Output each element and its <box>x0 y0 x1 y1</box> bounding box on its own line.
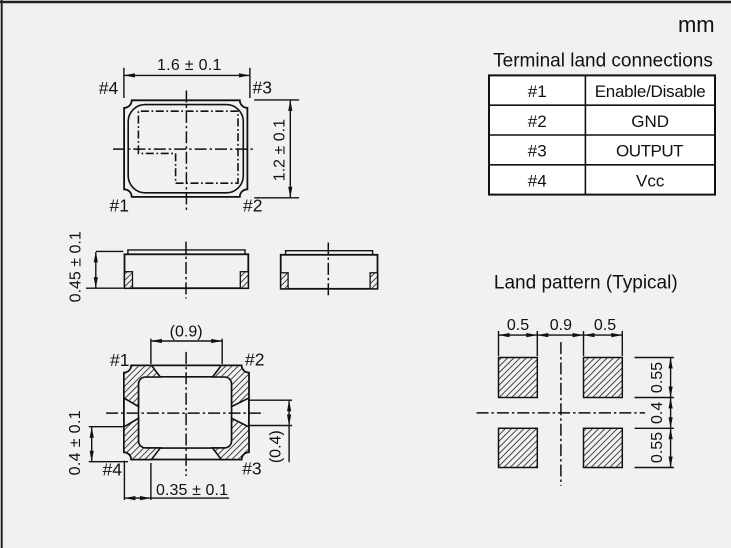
svg-text:#3: #3 <box>528 142 547 161</box>
svg-text:OUTPUT: OUTPUT <box>616 142 684 161</box>
svg-text:0.55: 0.55 <box>649 362 666 393</box>
svg-text:0.45 ± 0.1: 0.45 ± 0.1 <box>68 231 85 302</box>
svg-text:0.4 ± 0.1: 0.4 ± 0.1 <box>67 410 84 475</box>
svg-text:#1: #1 <box>110 350 129 370</box>
svg-text:0.9: 0.9 <box>550 317 572 334</box>
svg-text:#4: #4 <box>103 460 123 480</box>
svg-text:1.6 ± 0.1: 1.6 ± 0.1 <box>157 57 222 74</box>
svg-text:0.55: 0.55 <box>649 432 666 463</box>
svg-text:0.5: 0.5 <box>594 317 616 334</box>
svg-text:Vcc: Vcc <box>636 171 665 190</box>
svg-text:(0.4): (0.4) <box>267 430 284 463</box>
svg-text:#3: #3 <box>253 78 272 98</box>
svg-text:(0.9): (0.9) <box>170 324 203 341</box>
svg-text:#1: #1 <box>528 82 547 101</box>
svg-text:Land pattern (Typical): Land pattern (Typical) <box>494 273 678 294</box>
svg-text:0.5: 0.5 <box>507 317 529 334</box>
svg-text:#2: #2 <box>245 350 264 370</box>
svg-text:Terminal land connections: Terminal land connections <box>493 51 713 72</box>
svg-text:Enable/Disable: Enable/Disable <box>595 82 706 101</box>
svg-text:0.4: 0.4 <box>649 402 666 424</box>
svg-text:#1: #1 <box>110 195 129 215</box>
svg-text:GND: GND <box>631 112 669 131</box>
svg-text:mm: mm <box>678 12 715 37</box>
svg-text:#4: #4 <box>99 78 119 98</box>
svg-text:1.2 ± 0.1: 1.2 ± 0.1 <box>271 119 288 181</box>
svg-text:0.35 ± 0.1: 0.35 ± 0.1 <box>156 482 228 499</box>
svg-text:#3: #3 <box>242 459 261 479</box>
svg-text:#4: #4 <box>528 171 547 190</box>
svg-text:#2: #2 <box>528 112 547 131</box>
svg-text:#2: #2 <box>243 196 262 216</box>
